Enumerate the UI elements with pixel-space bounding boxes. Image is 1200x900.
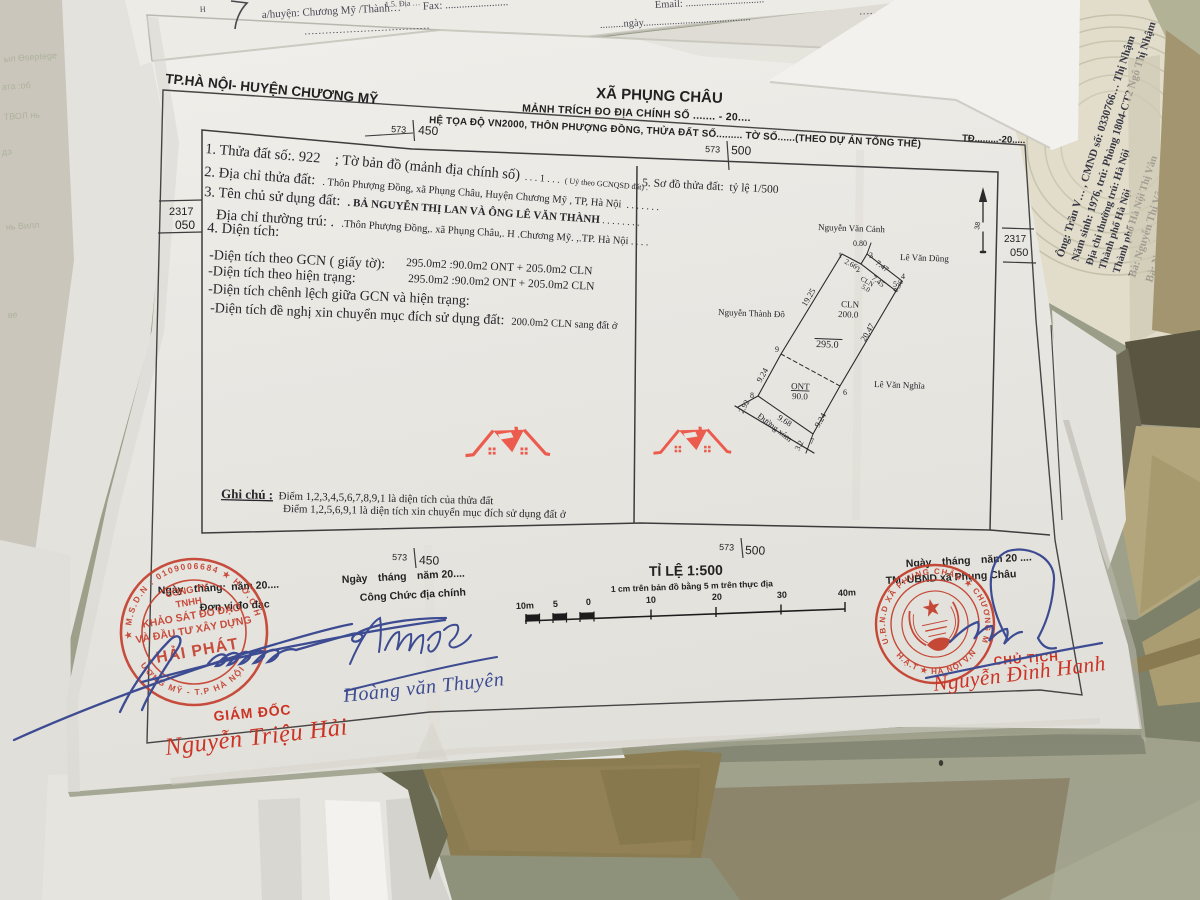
svg-text:2317: 2317 [1004,234,1027,245]
svg-text:8: 8 [750,391,754,400]
svg-text:ONT: ONT [791,381,810,392]
svg-text:ата :об: ата :об [1,80,31,92]
svg-text:CLN: CLN [841,299,860,310]
svg-text:Lê Văn Nghĩa: Lê Văn Nghĩa [874,379,925,391]
svg-text:TĐ.........-20.....: TĐ.........-20..... [962,133,1026,146]
svg-text:H: H [200,5,206,14]
svg-text:5: 5 [553,599,558,609]
svg-text:90.0: 90.0 [792,391,809,402]
svg-text:38: 38 [974,221,982,230]
svg-text:дэ: дэ [1,146,12,157]
svg-text:10m: 10m [516,600,534,611]
svg-text:1: 1 [838,251,842,260]
svg-text:ве: ве [7,309,17,320]
svg-text:050: 050 [175,218,195,232]
svg-text:500: 500 [745,543,766,558]
svg-text:573: 573 [719,542,734,553]
svg-text:0: 0 [586,597,591,607]
svg-text:0.80: 0.80 [853,239,867,248]
svg-text:450: 450 [418,123,439,138]
svg-text:573: 573 [392,552,407,563]
svg-text:4: 4 [901,272,905,281]
svg-text:10: 10 [646,595,656,605]
svg-text:9: 9 [775,345,779,354]
svg-text:295.0: 295.0 [816,339,839,351]
svg-text:200.0: 200.0 [838,309,859,320]
svg-text:Lê Văn Dũng: Lê Văn Dũng [900,252,950,264]
svg-text:450: 450 [419,553,440,568]
svg-text:7: 7 [810,437,814,446]
svg-text:2317: 2317 [169,206,193,218]
svg-text:40m: 40m [838,587,856,598]
svg-text:20: 20 [712,592,722,602]
svg-text:TỈ LỆ 1:500: TỈ LỆ 1:500 [649,561,723,579]
svg-text:6: 6 [843,388,847,397]
svg-text:573: 573 [705,144,720,155]
svg-text:500: 500 [731,143,752,158]
svg-text:3: 3 [869,251,873,260]
svg-text:050: 050 [1010,247,1028,259]
svg-text:30: 30 [777,590,787,600]
